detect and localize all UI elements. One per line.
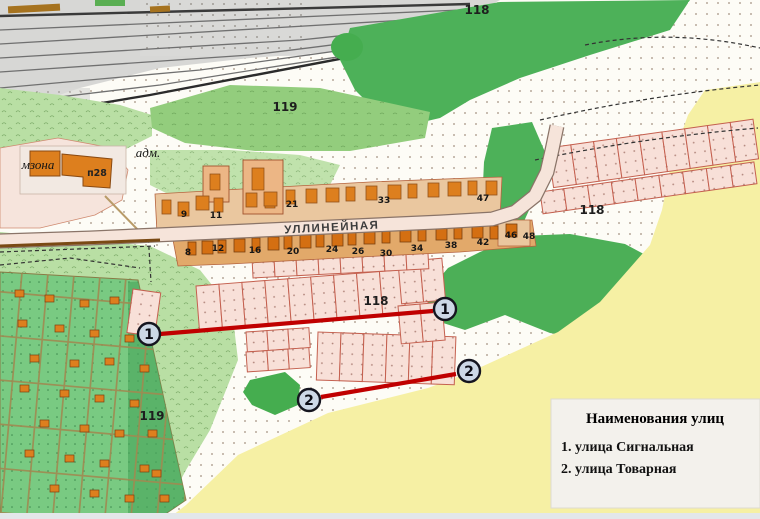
house <box>306 189 317 203</box>
house-number: 20 <box>287 247 300 257</box>
house-number: 34 <box>411 244 424 254</box>
parcel <box>267 349 289 370</box>
garden-cabin <box>20 385 29 392</box>
garden-cabin <box>55 325 64 332</box>
garden-cabin <box>25 450 34 457</box>
marker-number: 1 <box>440 302 450 318</box>
parcel <box>265 279 291 325</box>
house-number: 47 <box>477 194 490 204</box>
map-image[interactable]: 118119118118119 мзонаадм.п28 91121334781… <box>0 0 760 519</box>
parcel <box>219 282 245 328</box>
house-number: 33 <box>378 196 391 206</box>
parcel <box>334 273 360 319</box>
parcel <box>362 334 387 383</box>
garden-cabin <box>100 460 109 467</box>
house-number: 11 <box>210 211 223 221</box>
house <box>408 184 417 198</box>
house <box>468 181 477 195</box>
garden-cabin <box>90 330 99 337</box>
garden-cabin <box>40 420 49 427</box>
parcel <box>316 332 341 381</box>
parcel <box>339 333 364 382</box>
marker-number: 1 <box>144 327 154 343</box>
garden-cabin <box>80 300 89 307</box>
parcel <box>635 175 662 200</box>
house <box>448 182 461 196</box>
house <box>162 200 171 214</box>
house-number: 21 <box>286 200 299 210</box>
map-svg: 118119118118119 мзонаадм.п28 91121334781… <box>0 0 760 519</box>
parcel <box>730 162 757 187</box>
house-number: 9 <box>181 210 187 220</box>
house-number: 24 <box>326 245 339 255</box>
garden-cabin <box>65 455 74 462</box>
parcel <box>267 329 289 350</box>
garden-cabin <box>90 490 99 497</box>
garden-cabin <box>152 470 161 477</box>
legend-item: 1. улица Сигнальная <box>561 440 694 455</box>
house <box>428 183 439 197</box>
cadastral-zone-label: 118 <box>579 203 604 217</box>
building-28-label: п28 <box>87 168 107 179</box>
parcel <box>196 284 222 330</box>
industrial-zone-label: мзона <box>21 157 55 172</box>
parcel <box>246 351 268 372</box>
house <box>268 237 279 250</box>
parcel <box>659 172 686 197</box>
house <box>246 193 257 207</box>
legend-box: Наименования улиц 1. улица Сигнальная2. … <box>551 399 760 508</box>
admin-label: адм. <box>136 145 161 160</box>
legend-item: 2. улица Товарная <box>561 462 677 477</box>
house <box>214 198 223 212</box>
garden-cabin <box>30 355 39 362</box>
house-number: 30 <box>380 249 393 259</box>
parcel-row <box>246 348 310 372</box>
garden-cabin <box>95 395 104 402</box>
garden-cabin <box>160 495 169 502</box>
garden-cabin <box>140 465 149 472</box>
house-number: 16 <box>249 246 262 256</box>
rail-platform <box>150 5 170 12</box>
house-number: 46 <box>505 231 518 241</box>
parcel <box>288 348 310 369</box>
house <box>300 235 311 248</box>
house <box>316 234 324 247</box>
parcel <box>683 169 710 194</box>
parcel <box>311 275 337 321</box>
house <box>486 181 497 195</box>
house <box>346 187 355 201</box>
garden-cabin <box>60 390 69 397</box>
cadastral-zone-label: 119 <box>272 100 297 114</box>
garden-cabin <box>148 430 157 437</box>
marker-number: 2 <box>464 364 474 380</box>
house-number: 38 <box>445 241 458 251</box>
garden-cabin <box>45 295 54 302</box>
image-border <box>0 513 760 519</box>
garden-cabin <box>115 430 124 437</box>
cadastral-zone-label: 118 <box>464 3 489 17</box>
garden-cabin <box>70 360 79 367</box>
cadastral-zone-label: 118 <box>363 294 388 308</box>
house <box>196 196 209 210</box>
parcel <box>288 277 314 323</box>
house-number: 26 <box>352 247 365 257</box>
house <box>264 192 277 206</box>
house <box>234 239 245 252</box>
cadastral-zone-label: 119 <box>139 409 164 423</box>
garden-cabin <box>15 290 24 297</box>
house <box>348 232 356 245</box>
parcel <box>288 328 310 349</box>
marker-number: 2 <box>304 393 314 409</box>
house <box>366 186 377 200</box>
garden-cabin <box>105 358 114 365</box>
house-number: 8 <box>185 248 191 258</box>
parcel <box>706 165 733 190</box>
garden-cabin <box>130 400 139 407</box>
parcel <box>611 179 638 204</box>
house-number: 48 <box>523 232 536 242</box>
garden-cabin <box>80 425 89 432</box>
garden-cabin <box>125 335 134 342</box>
parcel <box>242 281 268 327</box>
parcel <box>246 331 268 352</box>
garden-cabin <box>125 495 134 502</box>
house <box>490 226 498 239</box>
garden-cabin <box>18 320 27 327</box>
house <box>364 231 375 244</box>
rail-green-strip <box>95 0 125 6</box>
garden-cabin <box>140 365 149 372</box>
house-number: 42 <box>477 238 490 248</box>
house-number: 12 <box>212 244 225 254</box>
garden-cabin <box>50 485 59 492</box>
garden-cabin <box>110 297 119 304</box>
legend-title: Наименования улиц <box>586 411 724 427</box>
parcel <box>730 119 758 162</box>
house <box>326 188 339 202</box>
